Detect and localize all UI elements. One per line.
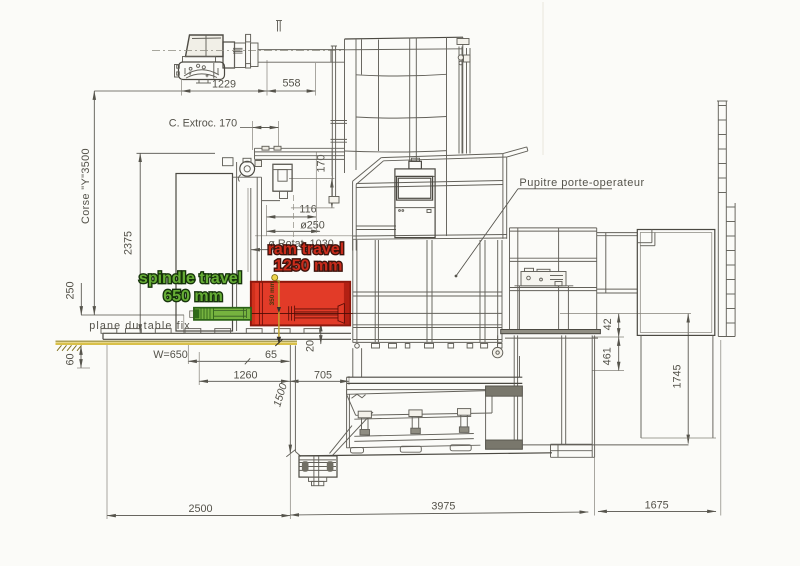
svg-text:2500: 2500 [188,503,212,515]
svg-text:Pupitre porte-operateur: Pupitre porte-operateur [519,177,644,189]
svg-text:1229: 1229 [212,79,236,91]
svg-text:ø250: ø250 [300,220,325,232]
svg-text:116: 116 [299,203,316,215]
svg-text:461: 461 [602,347,614,365]
svg-text:60: 60 [65,353,77,365]
svg-text:250: 250 [65,281,77,299]
svg-text:650 mm: 650 mm [163,288,223,305]
svg-text:558: 558 [282,78,300,90]
svg-text:65: 65 [265,349,277,361]
svg-text:705: 705 [314,369,332,381]
svg-text:170: 170 [316,154,328,172]
svg-text:350 mm: 350 mm [269,281,276,305]
svg-text:20: 20 [305,340,317,352]
svg-text:42: 42 [602,318,614,330]
svg-text:1745: 1745 [672,364,684,388]
svg-text:2375: 2375 [123,231,135,255]
svg-text:1250 mm: 1250 mm [274,257,343,274]
svg-text:3975: 3975 [431,500,455,512]
svg-text:W=650: W=650 [153,349,188,361]
svg-text:1675: 1675 [645,499,669,511]
svg-text:C. Extroc. 170: C. Extroc. 170 [169,117,237,129]
svg-text:Corse "Y"3500: Corse "Y"3500 [80,148,92,224]
svg-text:1260: 1260 [233,369,257,381]
svg-text:spindle travel: spindle travel [139,270,242,287]
svg-text:ram travel: ram travel [268,241,345,258]
